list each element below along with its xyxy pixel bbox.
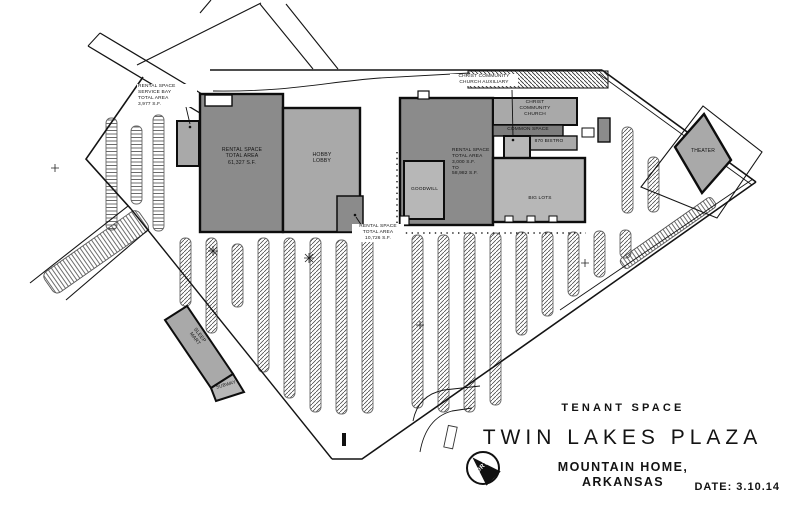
label-hobby-lobby: HOBBY LOBBY [288, 152, 356, 165]
roof-unit [418, 91, 429, 99]
titleblock-title: TWIN LAKES PLAZA [470, 425, 775, 451]
parking-row [438, 235, 449, 412]
label-service-bay: RENTAL SPACE SERVICE BAY TOTAL AREA 3,97… [137, 84, 197, 107]
label-rental-range: RENTAL SPACE TOTAL AREA 3,000 S.F. TO 58… [452, 148, 498, 177]
parking-row [258, 238, 269, 372]
parking-row [131, 126, 142, 204]
bistro-east-bay [582, 128, 594, 137]
parking-row [106, 118, 117, 230]
boundary-parking-comb [619, 196, 718, 270]
parking-row [622, 127, 633, 213]
label-common-space: COMMON SPACE [494, 127, 562, 133]
label-bistro: 870 BISTRO [524, 139, 574, 145]
vestibule [205, 95, 232, 106]
biglots-notch-3 [549, 216, 557, 222]
parking-row [153, 115, 164, 231]
parking-row [542, 232, 553, 316]
parking-row [310, 238, 321, 412]
parking-row [284, 238, 295, 398]
entrance-island [444, 425, 457, 448]
parking-row [412, 235, 423, 408]
biglots-notch-2 [527, 216, 535, 222]
label-big-lots: BIG LOTS [500, 196, 580, 202]
parking-row [568, 232, 579, 296]
label-goodwill: GOODWILL [405, 187, 444, 193]
parking-row [594, 231, 605, 277]
parking-row [516, 232, 527, 335]
biglots-notch-1 [505, 216, 513, 222]
label-theater: THEATER [675, 148, 731, 154]
building-big-lots [493, 158, 585, 222]
label-church-auxiliary: CHRIST COMMUNITY CHURCH AUXILIARY [450, 74, 518, 86]
label-rental-small: RENTAL SPACE TOTAL AREA 10,726 S.F. [352, 224, 404, 242]
parking-row [490, 233, 501, 405]
site-plan-sheet: RENTAL SPACE SERVICE BAY TOTAL AREA 3,97… [0, 0, 800, 517]
building-service-bay [177, 121, 199, 166]
label-church: CHRIST COMMUNITY CHURCH [496, 100, 574, 118]
parking-row [362, 237, 373, 413]
label-rental-main: RENTAL SPACE TOTAL AREA 61,327 S.F. [203, 147, 281, 166]
parking-row [336, 240, 347, 414]
entry-marker [342, 433, 346, 446]
parking-row [464, 233, 475, 412]
titleblock-subtitle: TENANT SPACE [553, 402, 693, 415]
parking-row [232, 244, 243, 307]
kiosk [598, 118, 610, 142]
angled-parking-strip [41, 208, 150, 295]
titleblock-date: DATE: 3.10.14 [640, 481, 780, 494]
